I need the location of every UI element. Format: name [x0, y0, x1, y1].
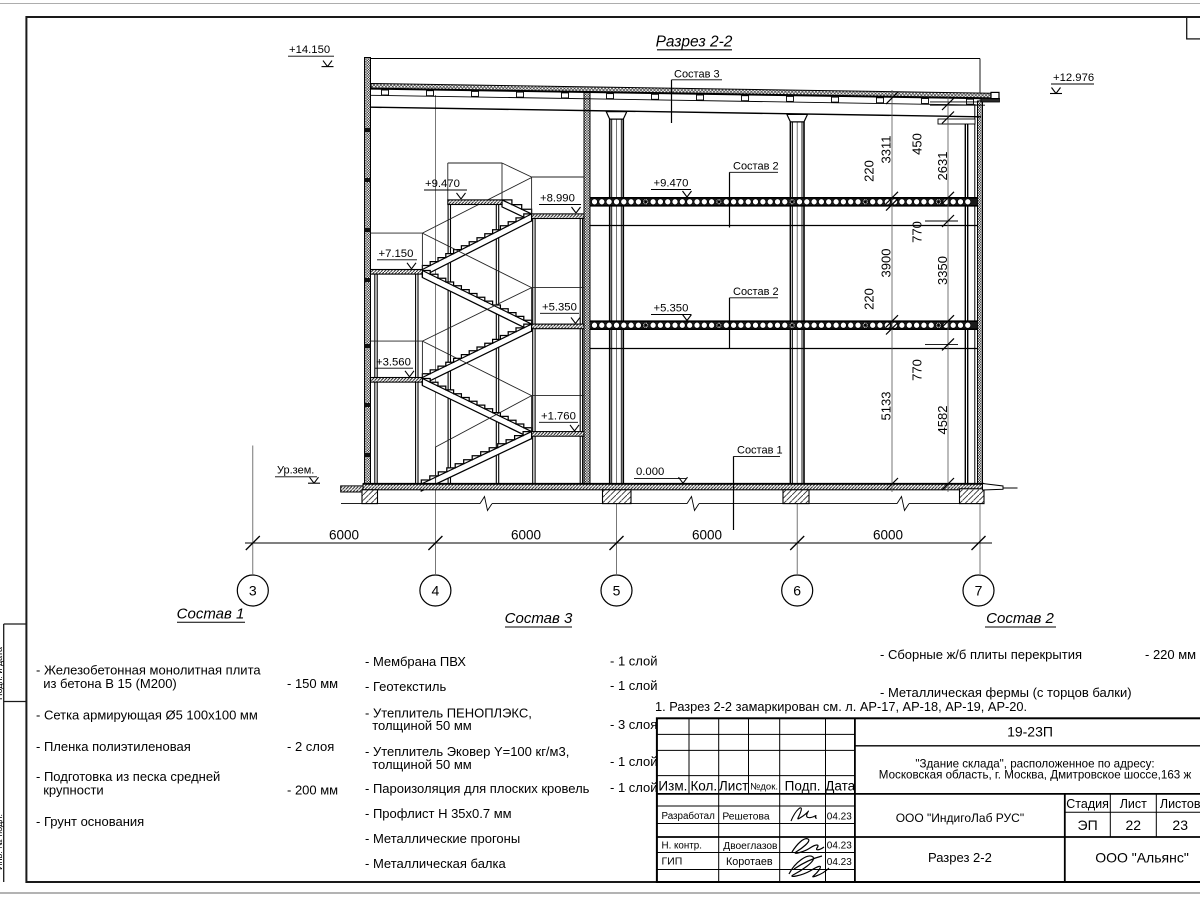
svg-text:из бетона В 15 (М200): из бетона В 15 (М200)	[36, 676, 177, 691]
svg-text:Кол.: Кол.	[690, 779, 717, 794]
svg-text:- Сборные ж/б плиты перекрытия: - Сборные ж/б плиты перекрытия	[880, 647, 1082, 662]
svg-text:- Профлист Н 35х0.7 мм: - Профлист Н 35х0.7 мм	[365, 806, 512, 821]
svg-text:Состав 2: Состав 2	[733, 161, 779, 173]
svg-text:19-23П: 19-23П	[1007, 724, 1053, 740]
svg-text:+12.976: +12.976	[1053, 72, 1094, 84]
svg-text:Состав 3: Состав 3	[674, 69, 720, 81]
svg-text:- Мембрана ПВХ: - Мембрана ПВХ	[365, 654, 466, 669]
svg-text:- Геотекстиль: - Геотекстиль	[365, 679, 446, 694]
svg-text:+5.350: +5.350	[654, 303, 689, 315]
svg-text:- 220 мм: - 220 мм	[1145, 647, 1196, 662]
svg-text:Подп.: Подп.	[785, 779, 821, 794]
svg-text:Состав 2: Состав 2	[986, 610, 1054, 627]
svg-text:+8.990: +8.990	[540, 193, 575, 205]
svg-text:770: 770	[910, 221, 925, 243]
svg-text:0.000: 0.000	[636, 466, 664, 478]
svg-text:1. Разрез 2-2 замаркирован см.: 1. Разрез 2-2 замаркирован см. л. АР-17,…	[655, 699, 1027, 714]
svg-text:- Пароизоляция для плоских кро: - Пароизоляция для плоских кровель	[365, 781, 590, 796]
svg-text:толщиной 50 мм: толщиной 50 мм	[365, 718, 472, 733]
svg-text:Лист: Лист	[719, 779, 748, 794]
svg-text:+9.470: +9.470	[425, 178, 460, 190]
svg-text:- Грунт основания: - Грунт основания	[36, 814, 144, 829]
svg-text:- 1 слой: - 1 слой	[610, 654, 658, 669]
svg-text:6000: 6000	[329, 528, 359, 543]
svg-text:- Металлическая балка: - Металлическая балка	[365, 856, 506, 871]
svg-text:Состав 2: Состав 2	[733, 286, 779, 298]
svg-text:+1.760: +1.760	[541, 411, 576, 423]
svg-text:+9.470: +9.470	[654, 178, 689, 190]
svg-text:22: 22	[1126, 817, 1142, 833]
svg-text:Коротаев: Коротаев	[726, 856, 773, 868]
svg-text:Дата: Дата	[825, 779, 855, 794]
svg-text:2631: 2631	[935, 152, 950, 181]
svg-text:04.23: 04.23	[827, 857, 852, 868]
svg-text:Состав 1: Состав 1	[737, 445, 783, 457]
svg-text:- 2 слоя: - 2 слоя	[287, 739, 334, 754]
svg-text:Стадия: Стадия	[1066, 797, 1109, 811]
svg-text:+5.350: +5.350	[542, 302, 577, 314]
svg-text:6000: 6000	[511, 528, 541, 543]
svg-text:Ур.зем.: Ур.зем.	[277, 465, 314, 477]
svg-text:- 1 слой: - 1 слой	[610, 678, 658, 693]
svg-text:3350: 3350	[935, 256, 950, 285]
svg-text:- Металлическая фермы (с торцо: - Металлическая фермы (с торцов балки)	[880, 685, 1132, 700]
svg-text:- 1 слой: - 1 слой	[610, 754, 658, 769]
svg-text:- Пленка полиэтиленовая: - Пленка полиэтиленовая	[36, 739, 191, 754]
svg-text:крупности: крупности	[36, 783, 104, 798]
svg-text:3900: 3900	[879, 249, 894, 278]
svg-text:№док.: №док.	[750, 782, 778, 793]
svg-text:+14.150: +14.150	[289, 44, 330, 56]
svg-text:- 3 слоя: - 3 слоя	[610, 717, 657, 732]
svg-text:04.23: 04.23	[827, 812, 852, 823]
svg-text:770: 770	[910, 359, 925, 381]
svg-text:Лист: Лист	[1120, 797, 1147, 811]
svg-text:7: 7	[975, 583, 983, 599]
svg-text:6000: 6000	[873, 528, 903, 543]
svg-text:3311: 3311	[879, 136, 894, 164]
svg-text:Листов: Листов	[1160, 797, 1200, 811]
svg-text:толщиной 50 мм: толщиной 50 мм	[365, 757, 472, 772]
svg-text:Московская область, г. Москва,: Московская область, г. Москва, Дмитровск…	[879, 769, 1192, 782]
svg-text:Разрез 2-2: Разрез 2-2	[656, 34, 733, 51]
svg-text:Н. контр.: Н. контр.	[662, 841, 702, 852]
svg-text:Инв. № подл.: Инв. № подл.	[0, 814, 4, 870]
svg-text:ЭП: ЭП	[1078, 817, 1098, 833]
svg-text:23: 23	[1172, 817, 1188, 833]
svg-text:+7.150: +7.150	[379, 248, 414, 260]
svg-text:Изм.: Изм.	[658, 779, 687, 794]
svg-text:220: 220	[862, 288, 877, 310]
svg-text:5133: 5133	[879, 392, 894, 421]
svg-text:220: 220	[862, 160, 877, 182]
svg-text:- 1 слой: - 1 слой	[610, 780, 658, 795]
svg-text:4: 4	[432, 583, 440, 599]
svg-text:04.23: 04.23	[827, 841, 852, 852]
svg-text:Решетова: Решетова	[722, 812, 769, 823]
svg-text:4582: 4582	[935, 406, 950, 435]
svg-text:- 150 мм: - 150 мм	[287, 676, 338, 691]
svg-text:- Сетка армирующая Ø5 100х100: - Сетка армирующая Ø5 100х100 мм	[36, 708, 258, 723]
svg-text:6: 6	[793, 583, 801, 599]
svg-text:- 200 мм: - 200 мм	[287, 783, 338, 798]
svg-text:ООО "ИндигоЛаб РУС": ООО "ИндигоЛаб РУС"	[896, 811, 1024, 825]
svg-text:Состав 3: Состав 3	[505, 610, 573, 627]
svg-text:Разрез 2-2: Разрез 2-2	[928, 850, 992, 865]
svg-text:3: 3	[249, 583, 257, 599]
svg-text:5: 5	[613, 583, 621, 599]
svg-text:Подп. и дата: Подп. и дата	[0, 647, 4, 700]
svg-text:ГИП: ГИП	[662, 856, 683, 868]
svg-text:450: 450	[910, 133, 925, 155]
svg-text:6000: 6000	[692, 528, 722, 543]
svg-text:- Металлические прогоны: - Металлические прогоны	[365, 831, 520, 846]
svg-text:Двоеглазов: Двоеглазов	[723, 841, 777, 852]
svg-text:Разработал: Разработал	[662, 811, 716, 822]
svg-text:+3.560: +3.560	[376, 357, 411, 369]
svg-text:ООО "Альянс": ООО "Альянс"	[1095, 850, 1189, 866]
svg-text:Состав 1: Состав 1	[177, 606, 245, 623]
